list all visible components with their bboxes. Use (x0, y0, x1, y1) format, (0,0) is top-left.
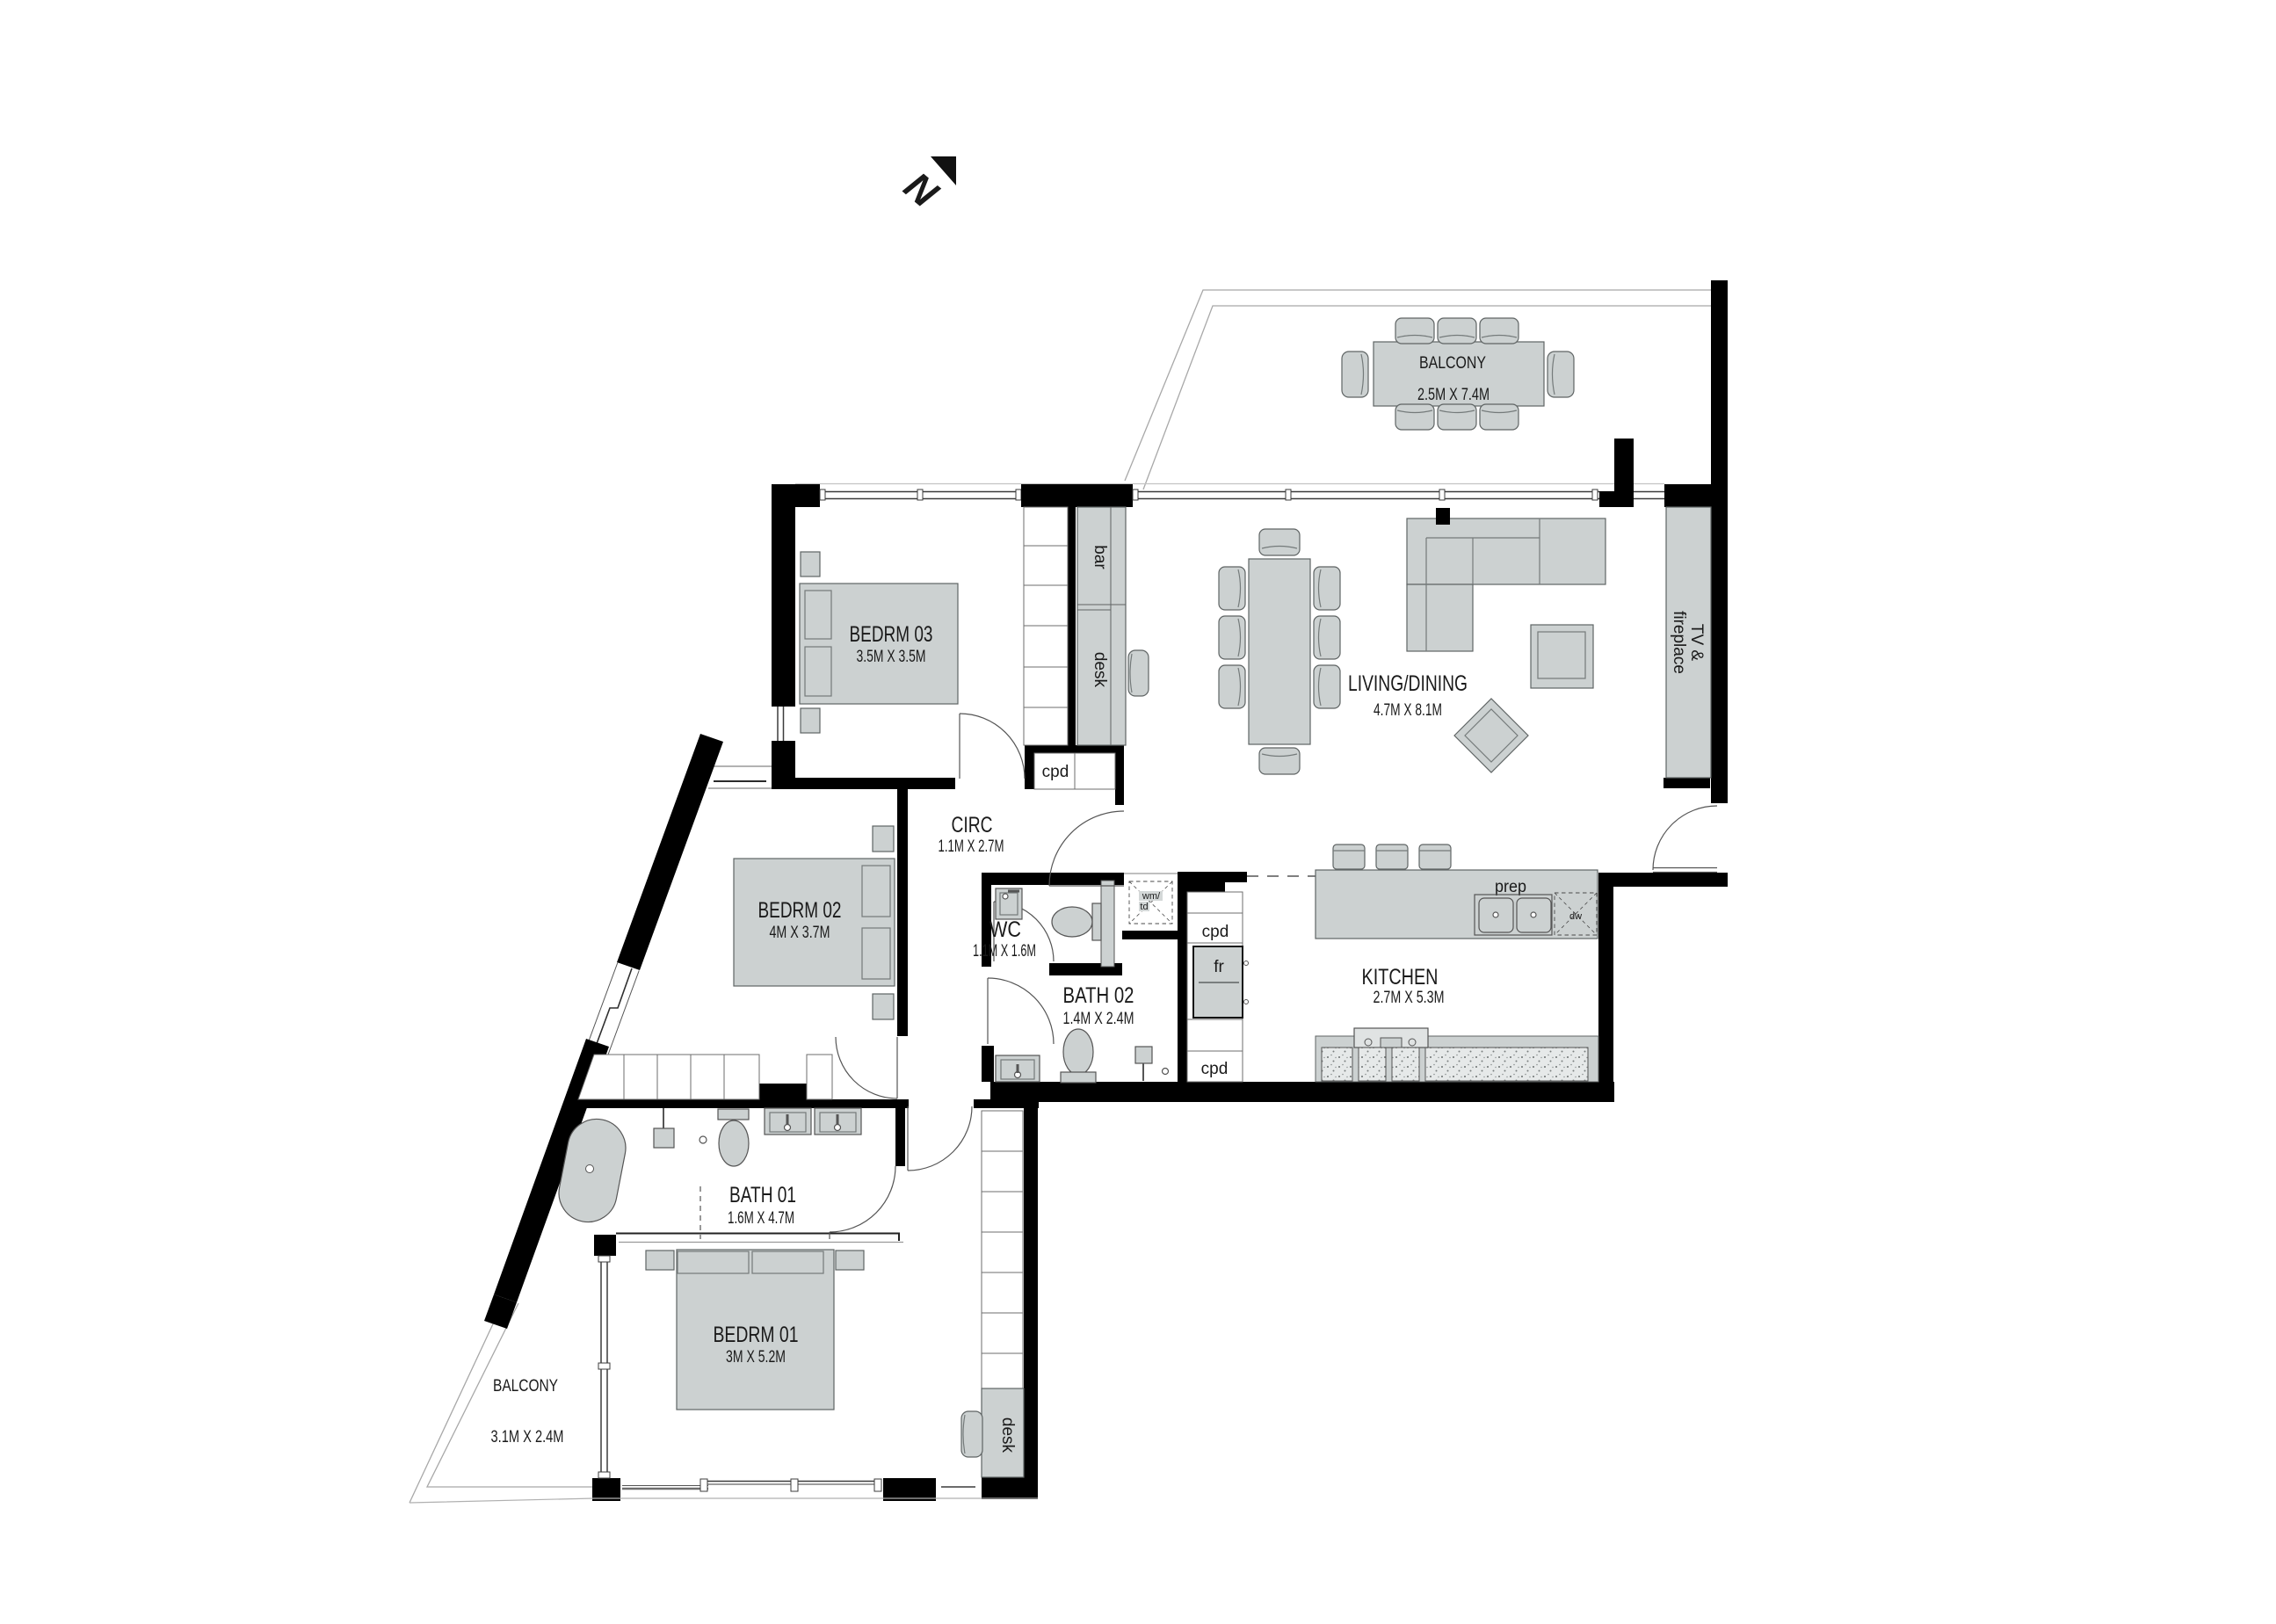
svg-text:BEDRM 02: BEDRM 02 (758, 898, 842, 923)
svg-text:prep: prep (1495, 878, 1526, 896)
svg-text:BATH 01: BATH 01 (729, 1183, 796, 1207)
svg-text:1.4M X 2.4M: 1.4M X 2.4M (1063, 1010, 1134, 1028)
svg-text:td: td (1140, 902, 1148, 912)
svg-text:wm/: wm/ (1142, 891, 1161, 902)
svg-text:bar: bar (1091, 545, 1109, 569)
svg-text:1.1M X 1.6M: 1.1M X 1.6M (973, 942, 1036, 961)
svg-text:CIRC: CIRC (952, 813, 993, 837)
svg-text:3M X 5.2M: 3M X 5.2M (726, 1348, 786, 1367)
svg-text:BEDRM 01: BEDRM 01 (714, 1323, 799, 1347)
svg-text:4.7M X 8.1M: 4.7M X 8.1M (1374, 701, 1442, 720)
svg-text:desk: desk (1091, 652, 1109, 688)
svg-text:LIVING/DINING: LIVING/DINING (1348, 671, 1468, 696)
svg-text:BEDRM 03: BEDRM 03 (850, 622, 933, 647)
svg-text:dw: dw (1569, 911, 1582, 922)
svg-text:3.5M X 3.5M: 3.5M X 3.5M (857, 648, 926, 666)
svg-text:BALCONY: BALCONY (1419, 354, 1486, 373)
svg-text:3.1M X 2.4M: 3.1M X 2.4M (491, 1428, 564, 1446)
svg-text:fr: fr (1214, 958, 1224, 976)
svg-text:BATH 02: BATH 02 (1063, 983, 1134, 1008)
svg-text:4M X 3.7M: 4M X 3.7M (770, 924, 830, 942)
svg-text:2.5M X 7.4M: 2.5M X 7.4M (1417, 386, 1490, 404)
svg-text:WC: WC (989, 917, 1021, 942)
svg-text:1.1M X 2.7M: 1.1M X 2.7M (939, 837, 1004, 856)
svg-text:cpd: cpd (1202, 923, 1229, 941)
svg-text:cpd: cpd (1201, 1060, 1229, 1078)
svg-text:2.7M X 5.3M: 2.7M X 5.3M (1374, 989, 1445, 1007)
svg-text:BALCONY: BALCONY (493, 1377, 558, 1396)
svg-text:cpd: cpd (1042, 763, 1069, 781)
svg-text:KITCHEN: KITCHEN (1362, 965, 1439, 990)
svg-text:desk: desk (998, 1417, 1017, 1454)
svg-text:1.6M X 4.7M: 1.6M X 4.7M (728, 1209, 794, 1228)
